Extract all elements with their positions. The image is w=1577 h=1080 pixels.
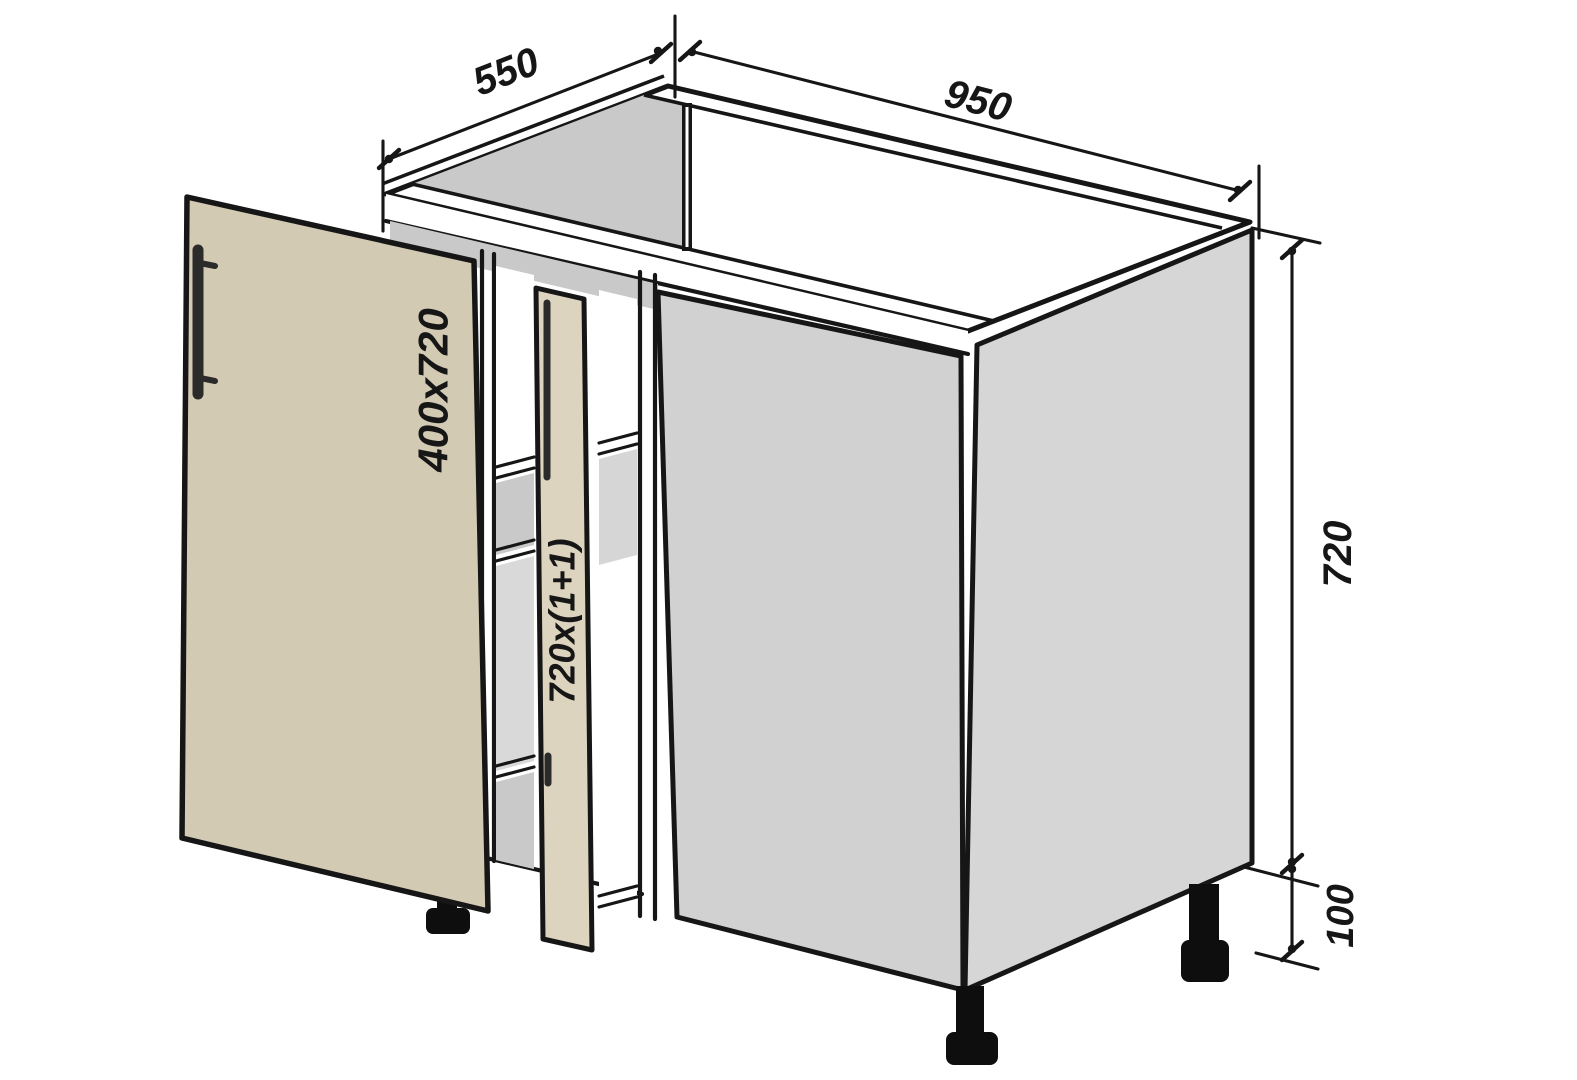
width-dimension-label: 950	[940, 71, 1016, 130]
shelf-opening-right	[599, 290, 637, 912]
dimension-height: 720	[1244, 228, 1360, 886]
foot-right	[1181, 884, 1229, 982]
door-size-label: 400x720	[410, 308, 457, 473]
left-door-panel: 400x720	[182, 197, 488, 911]
shelf-lines	[496, 457, 534, 869]
right-side-panel	[965, 230, 1252, 990]
corner-base-cabinet-drawing: 400x720 720x(1+1) 550 950 720	[0, 0, 1577, 1080]
shelf-opening	[496, 266, 534, 869]
blind-front-panel	[658, 292, 963, 990]
depth-dimension-label: 550	[467, 39, 545, 104]
leg-height-dimension-label: 100	[1320, 884, 1362, 947]
facade-size-label: 720x(1+1)	[542, 538, 583, 703]
dimension-leg-height: 100	[1256, 864, 1362, 969]
height-dimension-label: 720	[1316, 521, 1360, 588]
partition-stile	[640, 272, 655, 919]
furniture-dimension-diagram: 400x720 720x(1+1) 550 950 720	[0, 0, 1577, 1080]
foot-front	[946, 986, 998, 1065]
